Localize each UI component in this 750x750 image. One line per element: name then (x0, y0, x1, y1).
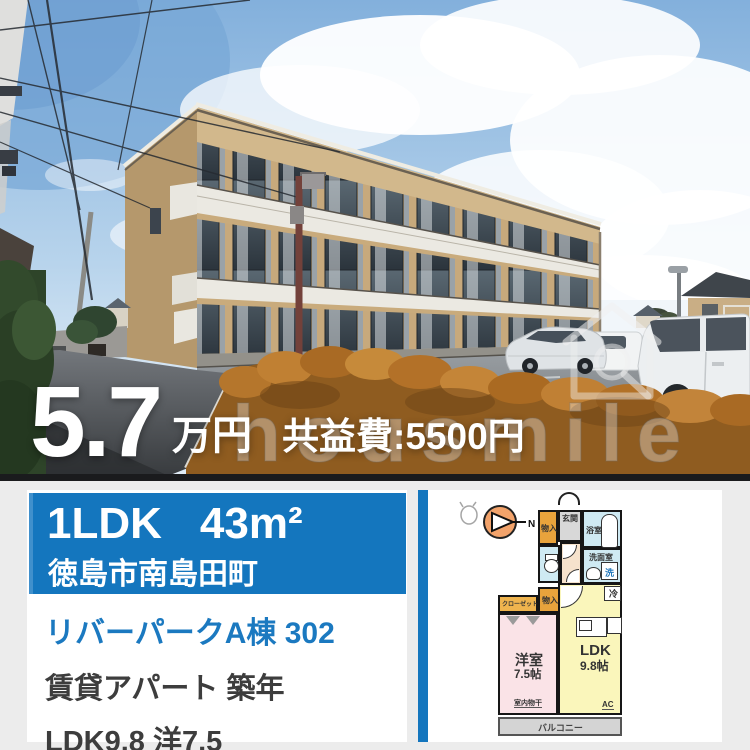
listing-info-section: 1LDK 43m² 徳島市南島田町 リバーパークA棟 302 賃貸アパート 築年… (0, 481, 750, 750)
property-photo[interactable]: housmile 5.7 万円 共益費:5500円 (0, 0, 750, 481)
balcony: バルコニー (498, 717, 622, 736)
price-unit: 万円 (172, 403, 252, 461)
room-toilet (538, 545, 560, 583)
location: 徳島市南島田町 (33, 547, 406, 593)
compass-north-label: N (528, 519, 535, 530)
banner-line1: 1LDK 43m² (33, 493, 406, 547)
listing-card: housmile 5.7 万円 共益費:5500円 1LDK 43m² 徳島市南… (0, 0, 750, 750)
entrance-door-arc (558, 492, 580, 505)
property-details: リバーパークA棟 302 賃貸アパート 築年 LDK9.8 洋7.5 (45, 608, 395, 750)
price-overlay: 5.7 万円 共益費:5500円 (30, 381, 525, 463)
kitchen-counter-icon (576, 617, 607, 637)
room-ldk: LDK 9.8帖 AC (558, 583, 622, 715)
washer-box: 洗 (601, 562, 618, 580)
room-genkan: 玄関 (558, 510, 582, 542)
layout-type: 1LDK (47, 501, 162, 547)
property-type: 賃貸アパート 築年 (45, 665, 395, 707)
room-closet: クローゼット (498, 595, 538, 613)
price-amount: 5.7 (30, 381, 160, 463)
room-storage-2: 物入 (538, 587, 560, 613)
property-title-link[interactable]: リバーパークA棟 302 (45, 608, 395, 652)
room-bath: 浴室 (582, 510, 622, 548)
fridge-space: 冷 (604, 586, 621, 601)
washbasin-icon (586, 567, 601, 580)
room-western: 洋室 7.5帖 室内物干 (498, 613, 558, 715)
floorplan-accent-stripe (418, 490, 428, 742)
room-sizes: LDK9.8 洋7.5 (45, 718, 395, 750)
maintenance-fee: 共益費:5500円 (282, 406, 525, 460)
floorplan: N 玄関 物入 浴室 (428, 490, 722, 742)
bathtub-icon (601, 514, 618, 548)
room-storage-1: 物入 (538, 510, 558, 545)
info-card: 1LDK 43m² 徳島市南島田町 リバーパークA棟 302 賃貸アパート 築年… (27, 490, 407, 742)
floor-area: 43m² (200, 501, 303, 547)
layout-banner: 1LDK 43m² 徳島市南島田町 (29, 493, 406, 594)
room-washroom: 洗面室 洗 (582, 548, 622, 584)
kitchen-box-icon (607, 617, 622, 634)
hallway (560, 542, 582, 585)
floorplan-card[interactable]: N 玄関 物入 浴室 (428, 490, 722, 742)
compass-icon: N (458, 500, 540, 544)
